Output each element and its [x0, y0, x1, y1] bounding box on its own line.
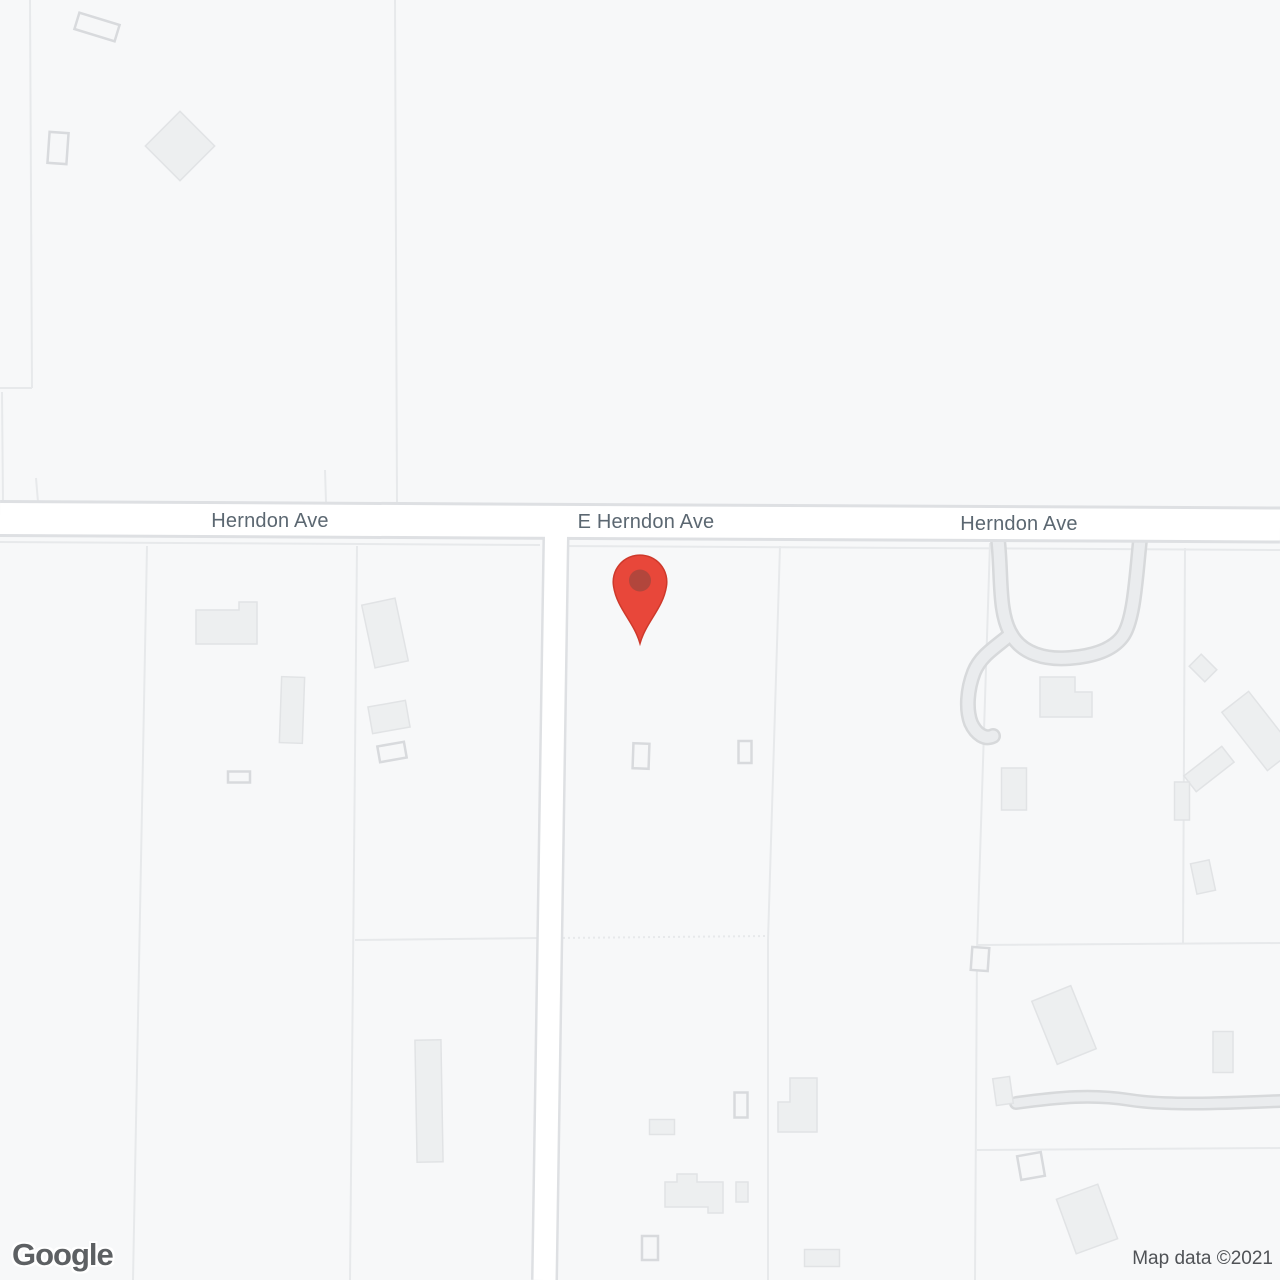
- building: [993, 1076, 1014, 1105]
- road: [545, 536, 557, 1280]
- building: [1002, 768, 1027, 810]
- building: [1213, 1032, 1233, 1073]
- map-canvas[interactable]: Herndon AveE Herndon AveHerndon Ave: [0, 0, 1280, 1280]
- building: [642, 1236, 658, 1260]
- building: [735, 1093, 748, 1118]
- building: [415, 1040, 443, 1162]
- parcel-line: [325, 470, 326, 502]
- building: [739, 741, 752, 763]
- road-label: E Herndon Ave: [578, 511, 715, 533]
- building: [633, 743, 650, 769]
- map-data-attribution: Map data ©2021: [1132, 1248, 1273, 1270]
- building: [368, 700, 410, 733]
- building: [971, 947, 990, 971]
- building: [1017, 1152, 1045, 1180]
- building: [279, 677, 304, 744]
- building: [736, 1182, 748, 1202]
- map-viewport[interactable]: Herndon AveE Herndon AveHerndon Ave Goog…: [0, 0, 1280, 1280]
- building: [377, 742, 406, 762]
- google-logo[interactable]: Google: [12, 1237, 113, 1273]
- road-label: Herndon Ave: [960, 513, 1077, 535]
- building: [805, 1250, 840, 1267]
- road-label: Herndon Ave: [211, 510, 328, 532]
- building: [47, 132, 68, 164]
- building: [228, 772, 250, 783]
- building: [1175, 782, 1190, 820]
- building: [650, 1120, 675, 1135]
- map-pin-inner-circle: [629, 570, 651, 592]
- parcel-line: [2, 392, 3, 502]
